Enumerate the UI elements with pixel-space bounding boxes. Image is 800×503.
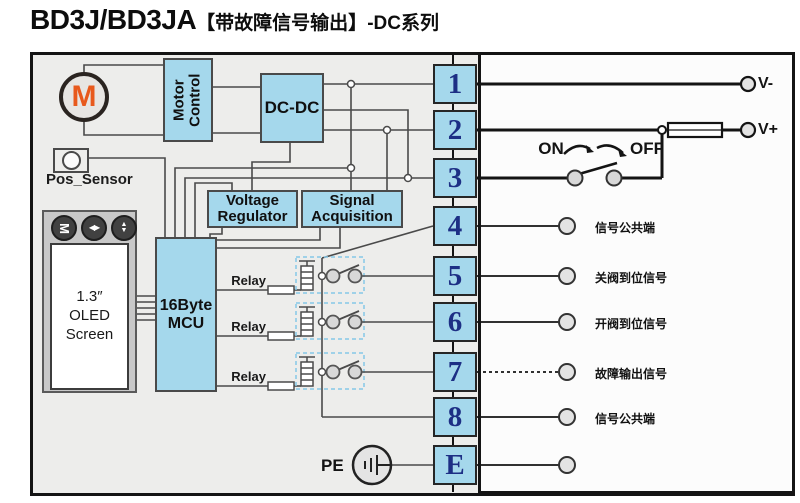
signal-wires [477, 226, 559, 465]
mcu-line1: 16Byte [160, 297, 212, 314]
vplus-terminal-circle [741, 123, 755, 137]
left-right-button-icon: ◀▶ [81, 215, 107, 241]
signal-terminal-circles [559, 218, 575, 473]
terminal-7: 7 [433, 352, 477, 392]
pos-sensor-circle-icon [62, 151, 81, 170]
terminal-5: 5 [433, 256, 477, 296]
oled-line3: Screen [66, 326, 114, 345]
oled-screen: 1.3″ OLED Screen [50, 243, 129, 390]
relay-contact-icon [319, 265, 434, 283]
terminal-8: 8 [433, 397, 477, 437]
relay-1-label: Relay [206, 273, 266, 288]
resistor-icon [268, 286, 294, 294]
terminal-6: 6 [433, 302, 477, 342]
switch-on-label: ON [531, 139, 571, 159]
menu-button-icon: M [51, 215, 77, 241]
terminal-e: E [433, 445, 477, 485]
signal-acquisition-line2: Acquisition [311, 209, 393, 225]
down-glyph: ▼ [121, 228, 128, 234]
oled-line2: OLED [69, 307, 110, 326]
junction-dot [658, 126, 666, 134]
terminal-3: 3 [433, 158, 477, 198]
vminus-terminal-circle [741, 77, 755, 91]
signal-label-7: 故障输出信号 [595, 365, 667, 382]
relay-contact-icon [319, 361, 434, 379]
oled-line1: 1.3″ [76, 288, 102, 307]
relay-2-label: Relay [206, 319, 266, 334]
motor-control-line1: Motor [172, 73, 188, 126]
up-down-button-icon: ▲ ▼ [111, 215, 137, 241]
motor-label: M [66, 79, 102, 115]
relay-coil-icon [299, 307, 315, 336]
voltage-regulator-line2: Regulator [217, 209, 287, 225]
voltage-regulator-line1: Voltage [226, 193, 279, 209]
block-signal-acquisition: Signal Acquisition [301, 190, 403, 228]
signal-label-4: 信号公共端 [595, 219, 655, 236]
signal-label-6: 开阀到位信号 [595, 315, 667, 332]
block-voltage-regulator: Voltage Regulator [207, 190, 298, 228]
terminal-4: 4 [433, 206, 477, 246]
resistor-icon [268, 332, 294, 340]
diagram-page: BD3J/BD3JA【带故障信号输出】-DC系列 [0, 0, 800, 503]
power-switch-icon [564, 145, 627, 186]
resistor-icon [268, 382, 294, 390]
relay-contact-icon [319, 311, 434, 329]
pe-label: PE [321, 456, 344, 476]
relay-coil-icon [299, 261, 315, 290]
switch-off-label: OFF [622, 139, 672, 159]
signal-label-5: 关阀到位信号 [595, 269, 667, 286]
terminal-2: 2 [433, 110, 477, 150]
vplus-label: V+ [758, 121, 778, 139]
dcdc-label: DC-DC [265, 99, 320, 117]
pe-ground-icon [353, 446, 391, 484]
left-right-glyph: ◀▶ [89, 224, 99, 232]
relay-coil-icon [299, 357, 315, 386]
signal-acquisition-line1: Signal [329, 193, 374, 209]
motor-control-line2: Control [188, 73, 204, 126]
vminus-label: V- [758, 75, 773, 93]
mcu-line2: MCU [168, 315, 204, 332]
signal-label-8: 信号公共端 [595, 410, 655, 427]
junction-dots [348, 81, 412, 182]
terminal-1: 1 [433, 64, 477, 104]
relay-3-label: Relay [206, 369, 266, 384]
fuse-icon [668, 123, 722, 137]
pos-sensor-label: Pos_Sensor [46, 171, 133, 188]
pos-sensor-box [53, 148, 89, 173]
block-dcdc: DC-DC [260, 73, 324, 143]
block-motor-control: Motor Control [163, 58, 213, 142]
menu-button-glyph: M [58, 223, 71, 234]
